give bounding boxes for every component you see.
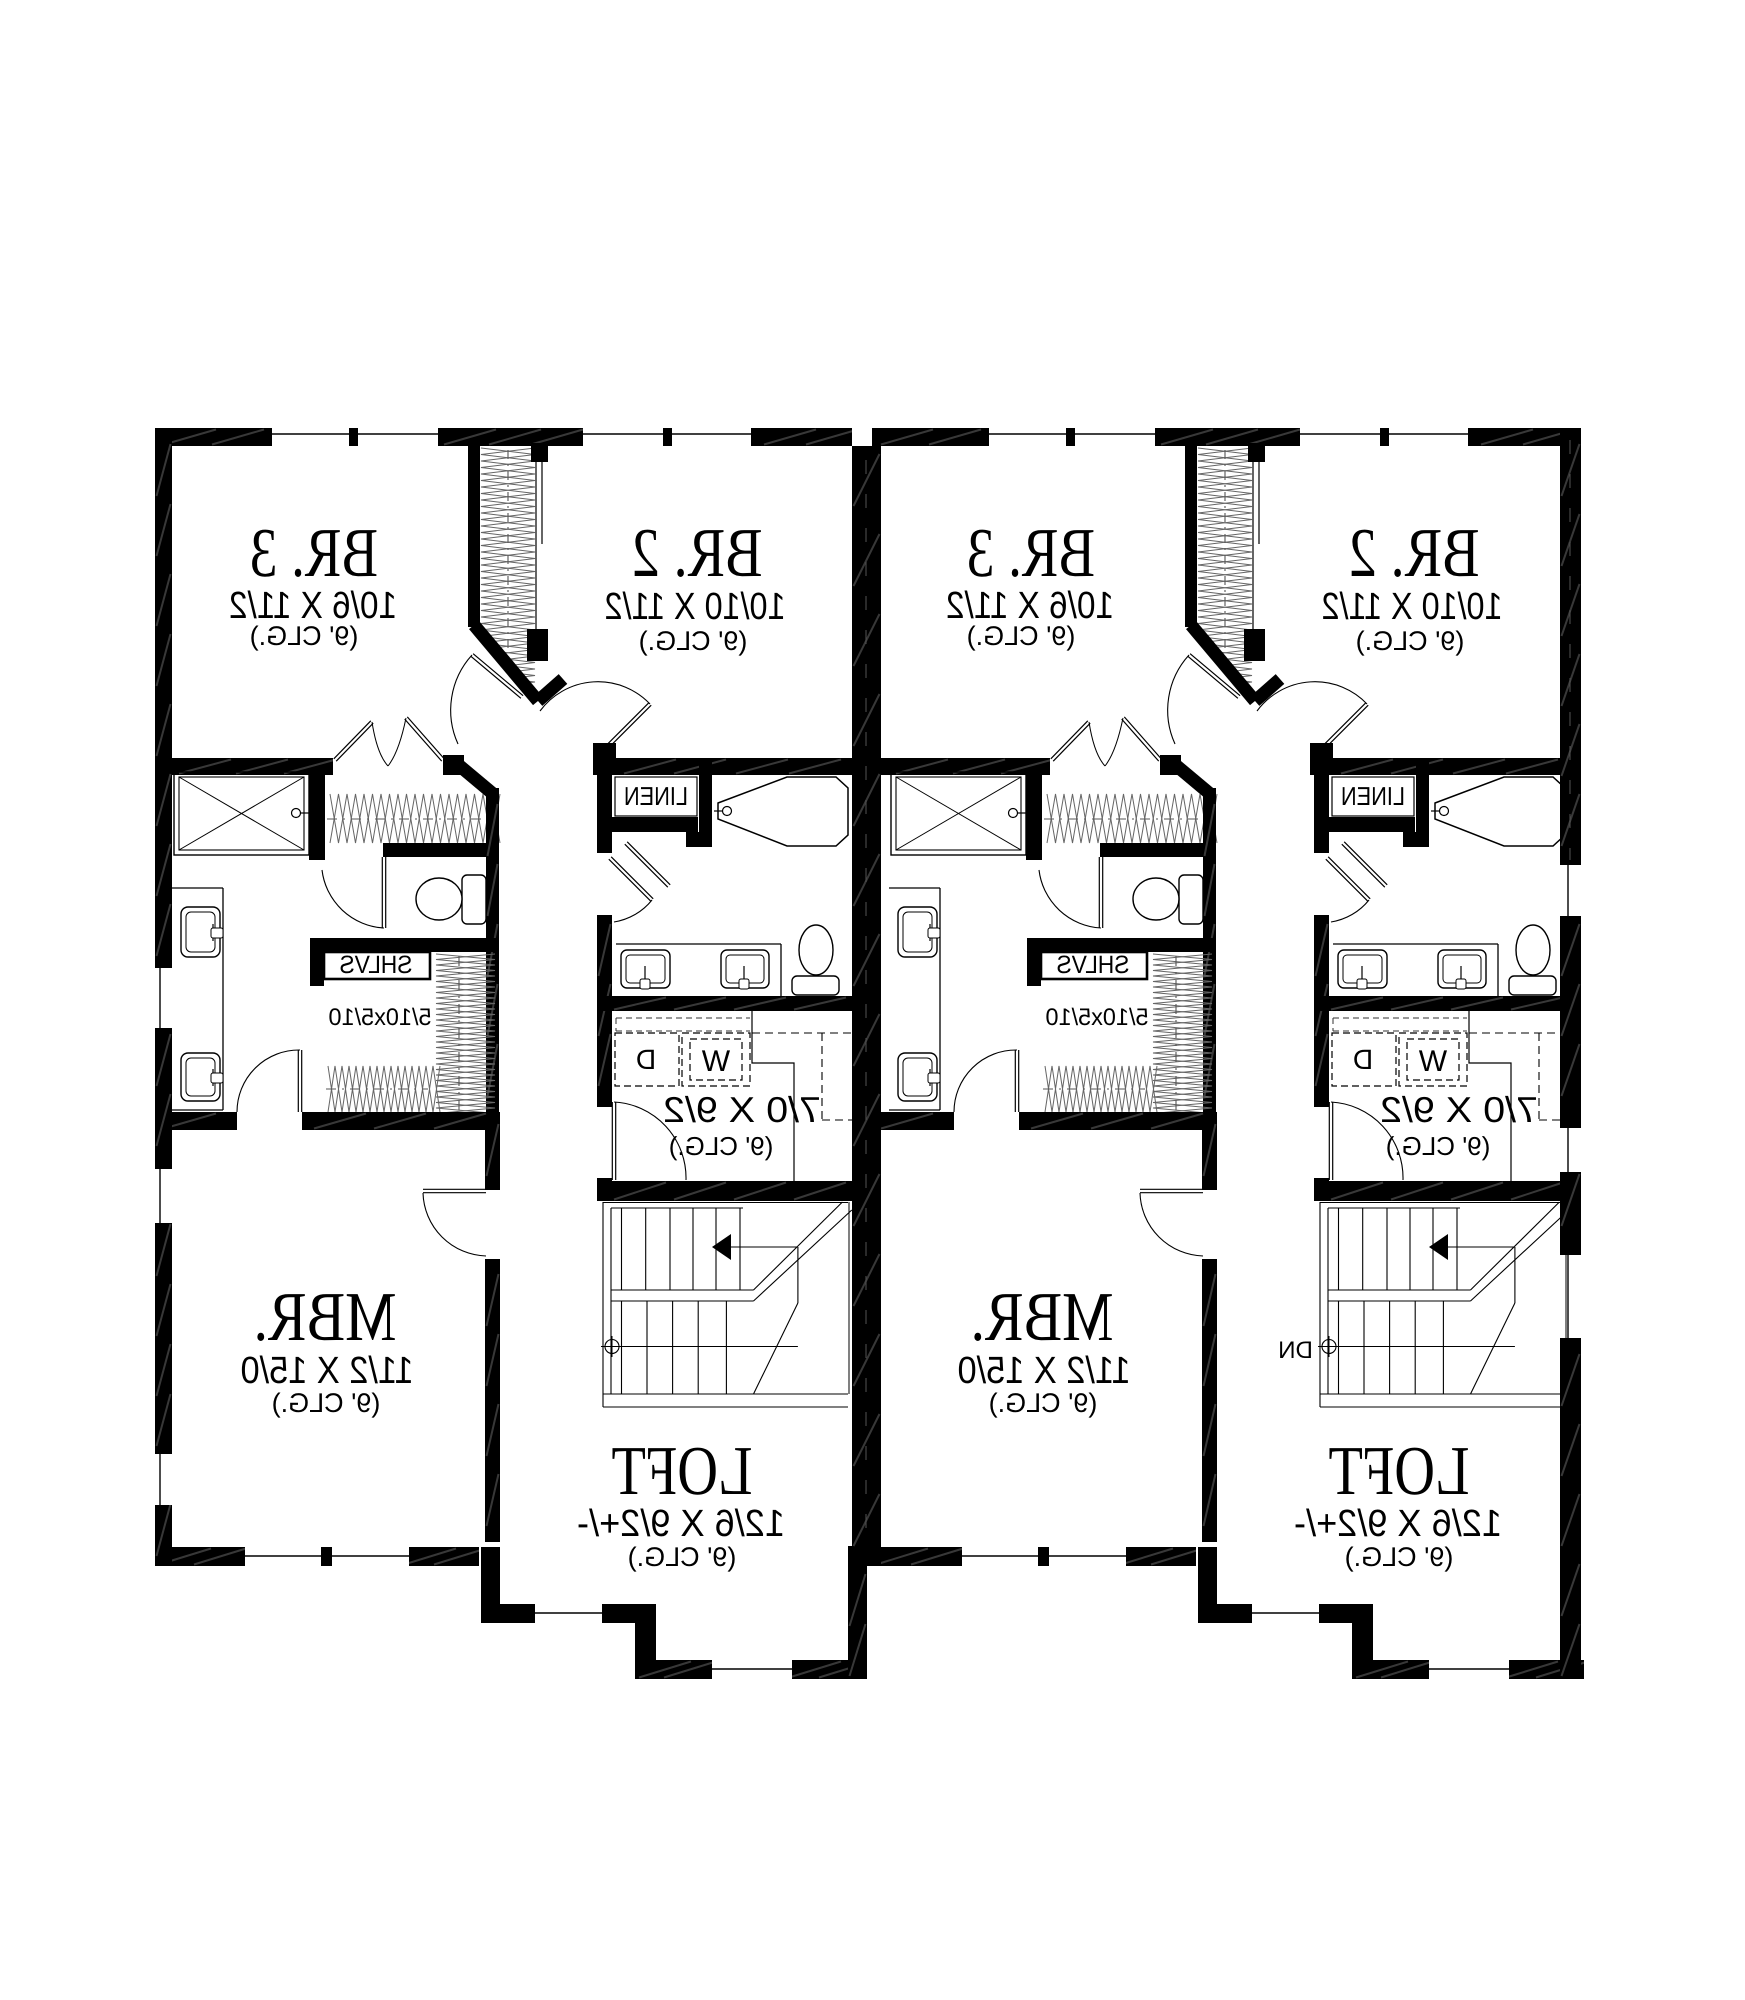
svg-text:SHLVS: SHLVS: [1057, 951, 1130, 979]
svg-text:12/6 X 9/2+/-: 12/6 X 9/2+/-: [1294, 1503, 1502, 1545]
svg-text:(9' CLG.): (9' CLG.): [272, 1388, 381, 1418]
svg-text:(9' CLG.): (9' CLG.): [1345, 1542, 1454, 1572]
svg-text:(9' CLG.): (9' CLG.): [250, 621, 359, 651]
svg-text:LINEN: LINEN: [624, 781, 688, 811]
svg-text:(9' CLG.): (9' CLG.): [967, 621, 1076, 651]
svg-text:BR. 3: BR. 3: [967, 515, 1095, 592]
svg-text:D: D: [1353, 1044, 1373, 1075]
svg-text:(9' CLG.): (9' CLG.): [989, 1388, 1098, 1418]
svg-text:SHLVS: SHLVS: [340, 951, 413, 979]
svg-text:11/2 X 15/0: 11/2 X 15/0: [241, 1350, 414, 1392]
svg-text:BR. 2: BR. 2: [632, 515, 763, 592]
svg-text:7/0 X 9/2: 7/0 X 9/2: [663, 1089, 821, 1130]
svg-text:(9' CLG.): (9' CLG.): [1356, 626, 1465, 656]
svg-text:BR. 2: BR. 2: [1349, 515, 1480, 592]
svg-text:MBR.: MBR.: [254, 1279, 397, 1356]
svg-text:7/0 X 9/2: 7/0 X 9/2: [1380, 1089, 1538, 1130]
svg-text:(9' CLG.): (9' CLG.): [628, 1542, 737, 1572]
svg-text:10/10 X 11/2: 10/10 X 11/2: [1322, 586, 1503, 628]
svg-text:5/10x5/10: 5/10x5/10: [329, 1004, 432, 1031]
svg-text:11/2 X 15/0: 11/2 X 15/0: [958, 1350, 1131, 1392]
svg-text:LOFT: LOFT: [1329, 1433, 1470, 1510]
svg-text:D: D: [636, 1044, 656, 1075]
svg-text:DN: DN: [1278, 1337, 1313, 1364]
svg-text:W: W: [1418, 1045, 1447, 1078]
svg-text:5/10x5/10: 5/10x5/10: [1046, 1004, 1149, 1031]
svg-text:MBR.: MBR.: [971, 1279, 1114, 1356]
svg-text:(9' CLG.): (9' CLG.): [639, 626, 748, 656]
svg-text:10/10 X 11/2: 10/10 X 11/2: [605, 586, 786, 628]
svg-text:(9' CLG.): (9' CLG.): [1386, 1131, 1491, 1161]
svg-text:(9' CLG.): (9' CLG.): [669, 1131, 774, 1161]
svg-text:LOFT: LOFT: [612, 1433, 753, 1510]
svg-text:12/6 X 9/2+/-: 12/6 X 9/2+/-: [577, 1503, 785, 1545]
svg-text:LINEN: LINEN: [1341, 781, 1405, 811]
svg-text:BR. 3: BR. 3: [250, 515, 378, 592]
svg-text:W: W: [701, 1045, 730, 1078]
